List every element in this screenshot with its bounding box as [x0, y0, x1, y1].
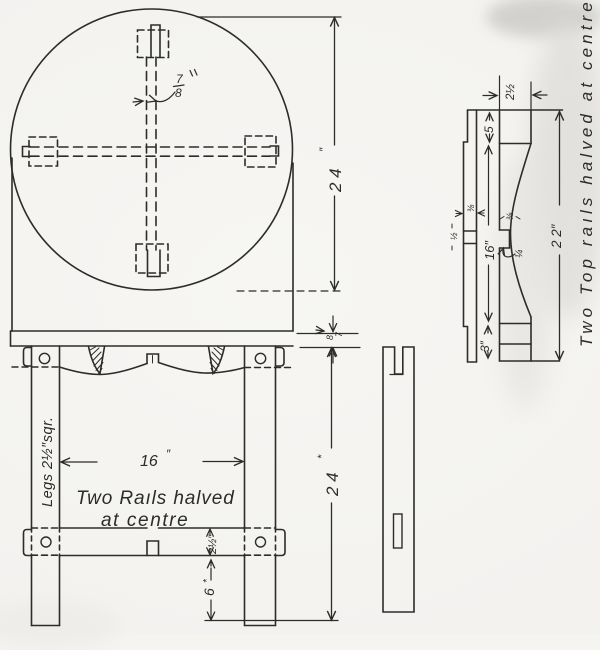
svg-text:16″: 16″ — [482, 241, 497, 260]
svg-text:⅜: ⅜ — [505, 212, 515, 220]
svg-text:Two Top raıls halved at centre: Two Top raıls halved at centre — [577, 0, 596, 347]
svg-text:2½″: 2½″ — [207, 534, 219, 555]
svg-text:at centre: at centre — [101, 510, 189, 531]
svg-text:2 4: 2 4 — [323, 472, 342, 497]
svg-text:″: ″ — [166, 447, 171, 461]
svg-text:5: 5 — [482, 126, 496, 133]
svg-text:7: 7 — [334, 331, 344, 337]
svg-text:Legs 2½″sqr.: Legs 2½″sqr. — [40, 417, 56, 507]
svg-text:8: 8 — [175, 86, 182, 100]
svg-text:7: 7 — [176, 72, 184, 86]
svg-text:″: ″ — [317, 147, 331, 152]
svg-text:16: 16 — [140, 453, 158, 470]
svg-text:⅜: ⅜ — [466, 204, 476, 212]
svg-text:8: 8 — [325, 335, 335, 340]
svg-text:2½: 2½ — [505, 84, 517, 101]
svg-text:¼: ¼ — [513, 250, 525, 258]
svg-text:*: * — [316, 454, 328, 459]
svg-text:Two Raıls halved: Two Raıls halved — [76, 488, 235, 509]
svg-text:6: 6 — [201, 588, 217, 596]
svg-text:3″: 3″ — [478, 340, 492, 352]
svg-text:2 2″: 2 2″ — [549, 223, 564, 249]
svg-text:2 4: 2 4 — [326, 168, 345, 193]
svg-text:½: ½ — [449, 232, 459, 240]
